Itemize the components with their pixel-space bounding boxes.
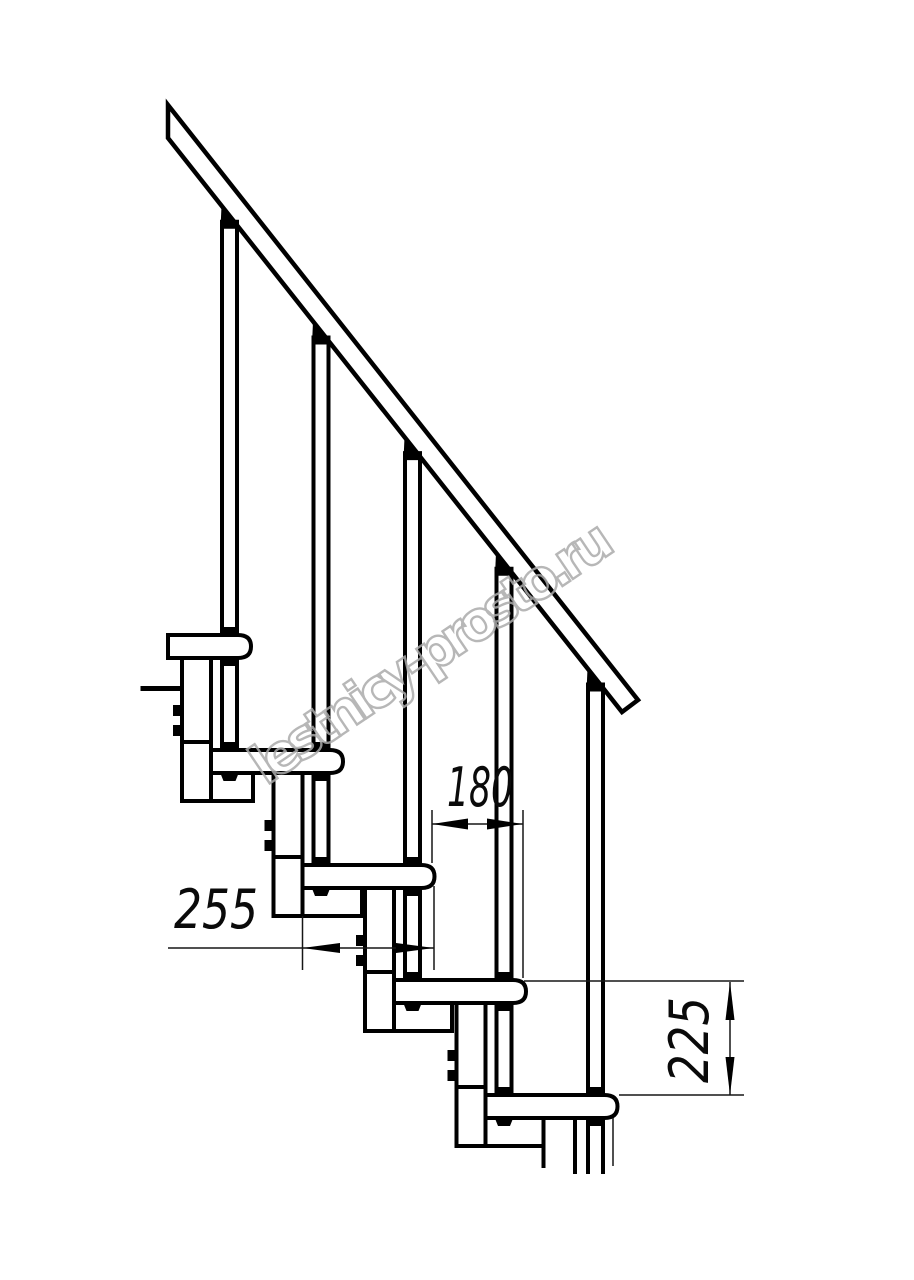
arrowhead-right: [487, 819, 523, 830]
clamp-tab-2b: [265, 840, 274, 851]
clamp-tab-2a: [265, 820, 274, 831]
clamp-tab-1b: [173, 725, 182, 736]
dimension-180: 180: [432, 756, 523, 978]
bracket-box-4: [486, 1118, 544, 1146]
tread-1: [168, 635, 251, 658]
dimension-255-label: 255: [174, 878, 258, 941]
tread-5: [486, 1095, 618, 1118]
dimension-225: 225: [524, 981, 744, 1095]
arrowhead-down: [726, 1057, 735, 1095]
arrowhead-left: [303, 943, 341, 953]
stringer-column-1: [182, 658, 211, 801]
bracket-box-3: [394, 1003, 452, 1031]
arrowhead-right: [396, 943, 434, 953]
clamp-tab-3b: [356, 955, 365, 966]
dimension-180-label: 180: [447, 756, 513, 819]
clamp-tab-3a: [356, 935, 365, 946]
watermark: lestnicy-prosto.ru: [238, 510, 621, 797]
bracket-box-2: [303, 888, 363, 916]
stringer-column-3: [365, 888, 394, 1031]
staircase-technical-drawing: 180 255 225 lestnicy-prosto.ru: [0, 0, 914, 1280]
tread-4: [394, 980, 526, 1003]
drawing-page: 180 255 225 lestnicy-prosto.ru: [0, 0, 914, 1280]
stringer-column-2: [274, 773, 303, 916]
dimension-225-label: 225: [658, 997, 721, 1083]
arrowhead-up: [726, 982, 735, 1020]
arrowhead-left: [432, 819, 468, 830]
clamp-tab-4a: [448, 1050, 457, 1061]
clamp-tab-4b: [448, 1070, 457, 1081]
tread-3: [303, 865, 435, 888]
clamp-tab-1a: [173, 705, 182, 716]
stringer-column-4: [457, 1003, 486, 1146]
